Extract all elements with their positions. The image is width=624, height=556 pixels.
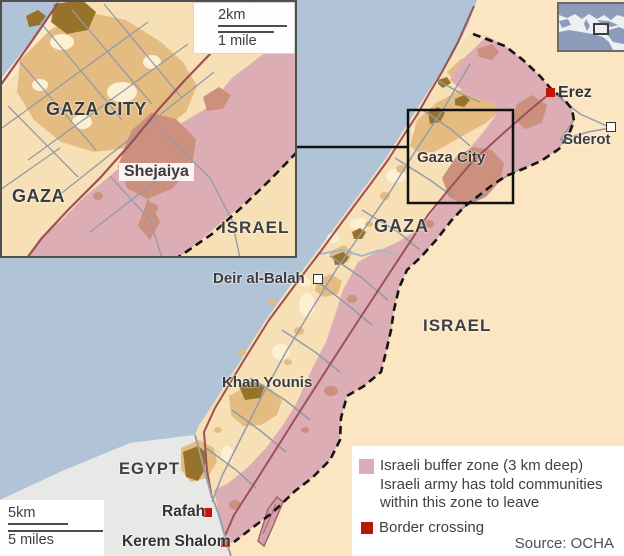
label-erez: Erez [558, 84, 592, 102]
label-kerem-shalom: Kerem Shalom [122, 533, 231, 551]
gaza-buffer-zone-map: GAZA CITY GAZA Shejaiya ISRAEL Gaza City… [0, 0, 624, 556]
buffer-zone-swatch [359, 459, 374, 474]
legend: Israeli buffer zone (3 km deep) Israeli … [352, 446, 624, 556]
inset-scale-imperial-label: 1 mile [218, 33, 294, 49]
source-credit: Source: OCHA [515, 535, 614, 554]
main-scale-imperial-label: 5 miles [8, 532, 104, 548]
label-inset-gaza-city: GAZA CITY [46, 99, 147, 120]
legend-buffer-text: Israeli buffer zone (3 km deep) Israeli … [380, 457, 603, 513]
legend-buffer-line1: Israeli buffer zone (3 km deep) [380, 457, 603, 476]
legend-buffer-line3: within this zone to leave [380, 494, 603, 513]
legend-buffer-item: Israeli buffer zone (3 km deep) Israeli … [359, 457, 616, 513]
legend-crossing-text: Border crossing [379, 519, 484, 538]
border-crossing-swatch [361, 522, 373, 534]
main-scale-bar: 5km 5 miles [0, 500, 104, 556]
label-gaza-city: Gaza City [417, 149, 485, 166]
main-scale-metric-label: 5km [8, 505, 104, 521]
inset-scale-bar: 2km 1 mile [193, 2, 295, 54]
label-inset-gaza: GAZA [12, 186, 65, 207]
label-israel: ISRAEL [423, 316, 491, 336]
inset-scale-metric-label: 2km [218, 7, 294, 23]
label-shejaiya: Shejaiya [119, 163, 194, 181]
label-egypt: EGYPT [119, 460, 180, 479]
erez-crossing-marker [546, 88, 555, 97]
label-sderot: Sderot [563, 131, 611, 148]
label-inset-israel: ISRAEL [221, 218, 289, 238]
locator-map [557, 2, 624, 52]
locator-landmasses [559, 4, 624, 50]
label-khan-younis: Khan Younis [222, 374, 312, 391]
locator-region-box [594, 24, 608, 34]
label-deir-al-balah: Deir al-Balah [213, 270, 305, 287]
main-scale-metric-line [8, 523, 68, 525]
label-gaza: GAZA [374, 216, 429, 237]
deir-al-balah-town-marker [313, 274, 323, 284]
label-rafah: Rafah [162, 503, 205, 521]
inset-scale-metric-line [218, 25, 287, 27]
legend-buffer-line2: Israeli army has told communities [380, 476, 603, 495]
